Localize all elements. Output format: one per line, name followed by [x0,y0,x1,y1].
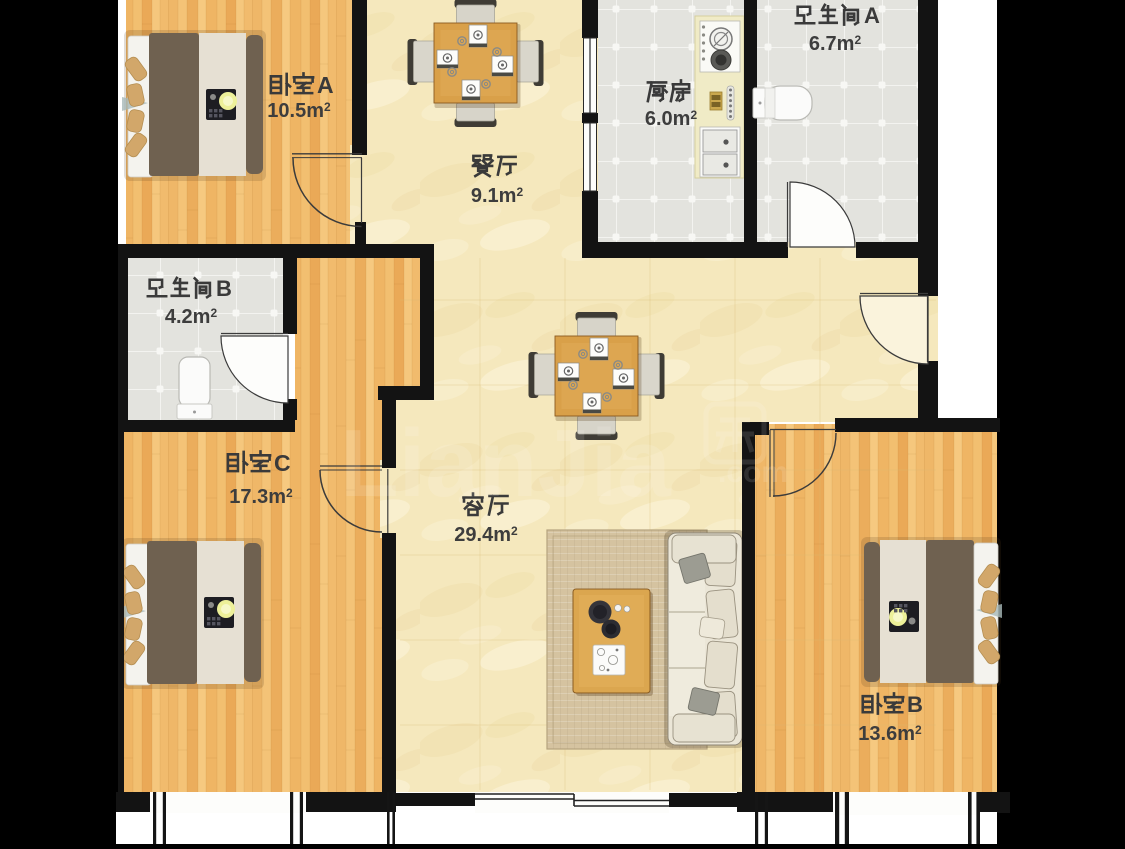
svg-text:A: A [317,72,334,98]
svg-text:9.1m2: 9.1m2 [471,185,524,207]
svg-text:4.2m2: 4.2m2 [165,306,218,328]
svg-text:6.7m2: 6.7m2 [809,33,862,55]
svg-text:13.6m2: 13.6m2 [858,723,922,745]
svg-text:6.0m2: 6.0m2 [645,108,698,130]
svg-text:.com: .com [718,456,788,489]
svg-text:29.4m2: 29.4m2 [454,524,518,546]
svg-text:C: C [274,450,291,476]
svg-text:LianJia: LianJia [340,410,671,517]
svg-text:B: B [216,276,232,301]
svg-text:10.5m2: 10.5m2 [267,100,331,122]
svg-text:17.3m2: 17.3m2 [229,486,293,508]
svg-text:A: A [864,3,880,28]
svg-text:B: B [907,692,923,717]
